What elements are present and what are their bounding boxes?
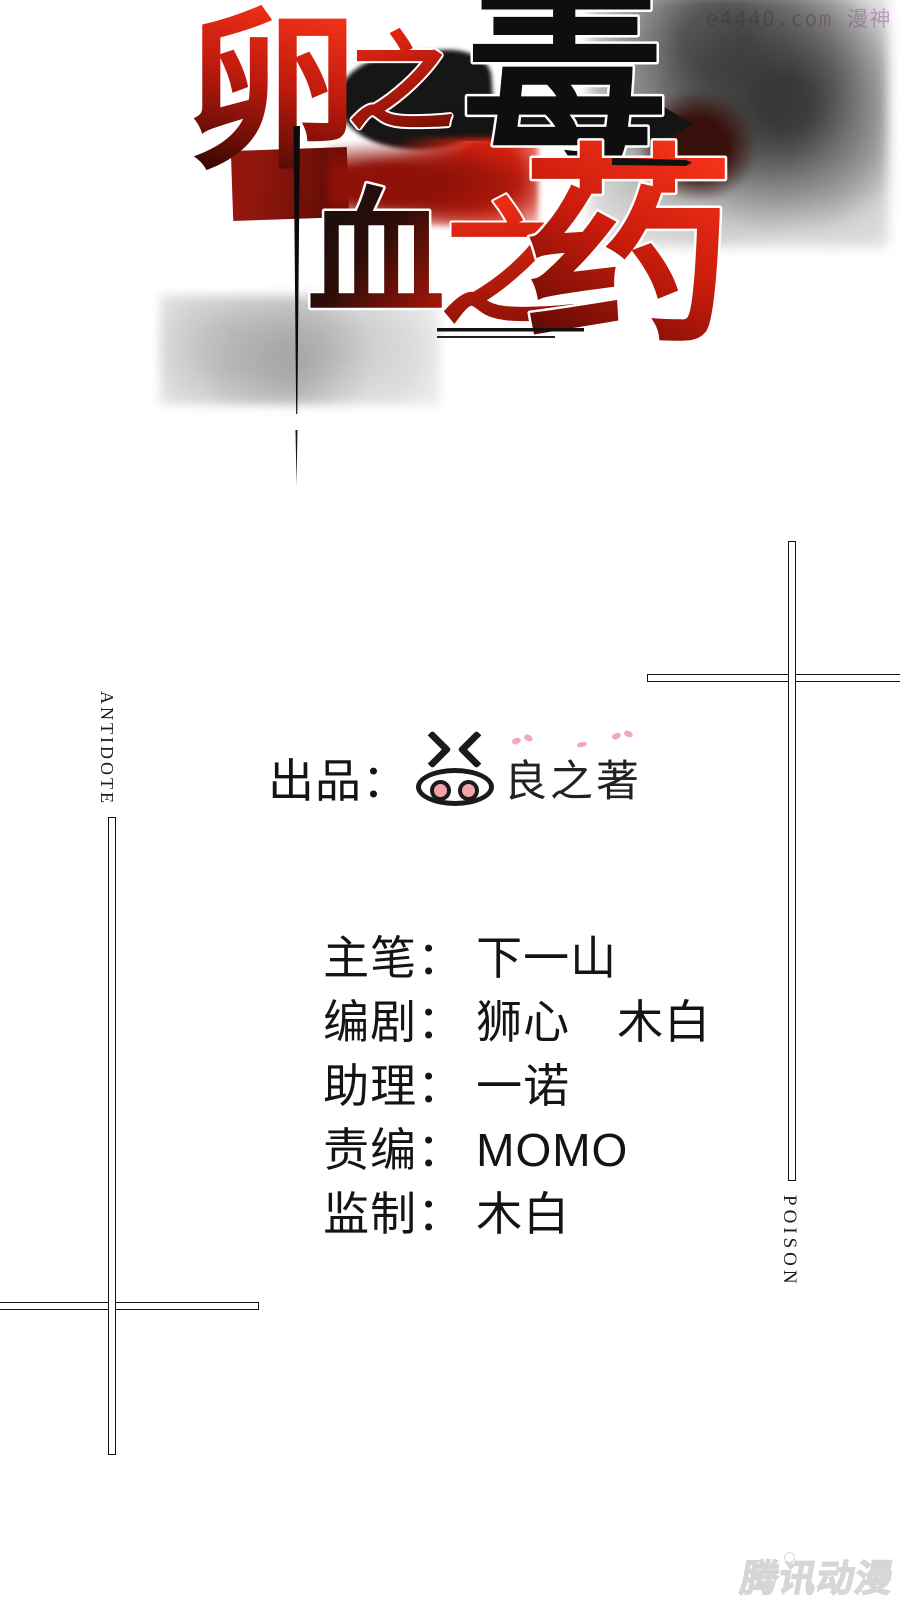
credit-row-supervisor: 监制：木白	[268, 1124, 570, 1298]
pig-nostril-right	[458, 780, 479, 801]
pig-snout-icon	[416, 768, 494, 806]
title-artwork: 毒 卵 之 血 之 药	[0, 0, 900, 500]
title-char-zhi-1: 之	[348, 25, 454, 143]
publisher-watermark: 腾讯动漫	[737, 1548, 899, 1602]
left-cross-horizontal-rule	[0, 1302, 259, 1310]
right-cross-horizontal-rule	[647, 674, 900, 682]
flourish-line-1	[437, 328, 584, 332]
title-characters: 毒 卵 之 血 之 药	[0, 0, 900, 500]
pig-nostril-left	[430, 780, 451, 801]
producer-name: 良之著	[504, 747, 642, 809]
pink-deco-4	[611, 731, 622, 741]
flourish-line-2	[437, 336, 555, 338]
pig-closed-eye-right-icon	[457, 730, 495, 768]
left-cross-vertical-rule	[108, 817, 116, 1455]
credit-label: 监制：	[323, 1188, 464, 1240]
comic-title-page: e4440.com 漫神	[0, 0, 900, 1610]
needle-stroke	[294, 126, 301, 414]
pig-closed-eye-left-icon	[413, 730, 451, 768]
producer-label: 出品：	[268, 745, 409, 811]
pig-face-icon	[413, 726, 497, 806]
right-cross-vertical-rule	[788, 541, 796, 1181]
needle-stroke-tip	[296, 430, 298, 486]
publisher-logo-circle-icon	[784, 1552, 795, 1563]
credit-value: 木白	[476, 1188, 570, 1240]
producer-row: 出品：	[268, 748, 409, 808]
pink-deco-1	[511, 736, 522, 745]
antidote-vertical-label: ANTIDOTE	[96, 691, 117, 806]
pink-deco-2	[523, 733, 534, 742]
pink-deco-5	[623, 730, 634, 739]
title-char-luan: 卵	[186, 0, 358, 189]
poison-vertical-label: POISON	[778, 1195, 800, 1288]
title-char-xue: 血	[307, 178, 445, 332]
